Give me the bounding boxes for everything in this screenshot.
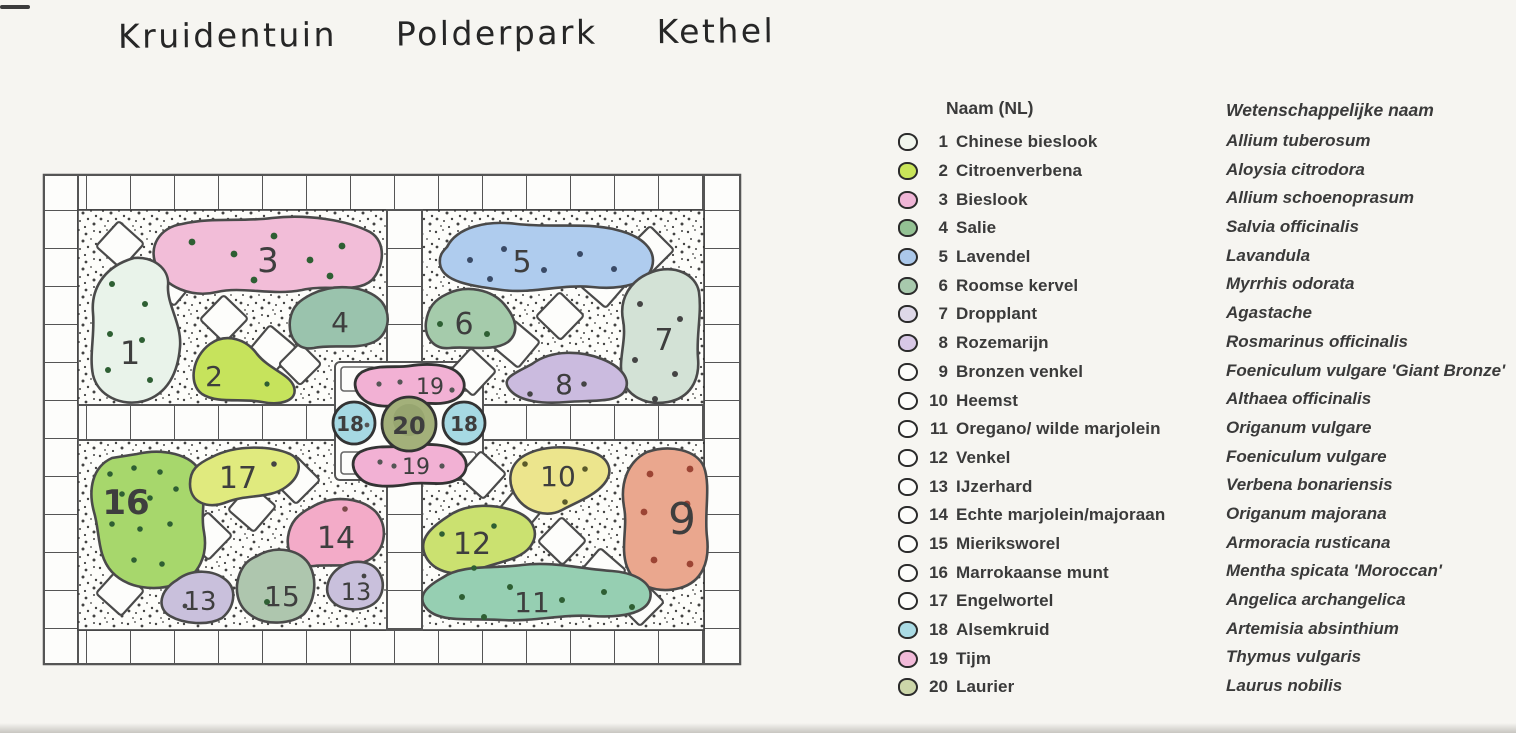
bed-label-19t: 19 — [416, 375, 444, 400]
legend-swatch — [898, 650, 918, 668]
legend-swatch — [898, 392, 918, 410]
legend-swatch — [898, 535, 918, 553]
legend-swatch — [898, 420, 918, 438]
bed-label-4: 4 — [331, 306, 349, 339]
bed-label-11: 11 — [514, 586, 550, 619]
legend-item-number: 19 — [924, 649, 948, 669]
legend-item-name-sci: Armoracia rusticana — [1226, 533, 1390, 553]
bed-label-6: 6 — [454, 307, 473, 342]
legend-item-name-sci: Allium schoenoprasum — [1226, 188, 1414, 208]
legend-swatch — [898, 564, 918, 582]
bed-label-19b: 19 — [402, 455, 430, 480]
legend-item-number: 14 — [924, 505, 948, 525]
legend-row: 15 Mieriksworel Armoracia rusticana — [888, 530, 1513, 559]
legend-row: 17 Engelwortel Angelica archangelica — [888, 587, 1513, 616]
legend-swatch — [898, 678, 918, 696]
bed-label-7: 7 — [654, 323, 673, 358]
bed-label-2: 2 — [205, 360, 223, 393]
legend-row: 18 Alsemkruid Artemisia absinthium — [888, 616, 1513, 645]
legend-swatch — [898, 191, 918, 209]
legend-row: 2 Citroenverbena Aloysia citrodora — [888, 157, 1513, 186]
legend-row: 3 Bieslook Allium schoenoprasum — [888, 185, 1513, 214]
bed-label-17: 17 — [219, 461, 257, 496]
scan-artifact — [0, 5, 30, 9]
legend-header-nl: Naam (NL) — [946, 98, 1034, 119]
legend-item-name-nl: Chinese bieslook — [956, 132, 1097, 152]
bed-label-20: 20 — [392, 412, 425, 440]
legend-swatch — [898, 162, 918, 180]
bed-label-1: 1 — [120, 334, 140, 372]
bed-label-18r: 18 — [450, 412, 478, 436]
legend-swatch — [898, 592, 918, 610]
bed-label-13a: 13 — [183, 587, 216, 617]
legend: Naam (NL) Wetenschappelijke naam 1 Chine… — [888, 98, 1513, 702]
legend-row: 14 Echte marjolein/majoraan Origanum maj… — [888, 501, 1513, 530]
scan-artifact-bottom — [0, 723, 1516, 733]
bed-label-3: 3 — [257, 241, 279, 281]
legend-item-name-nl: Tijm — [956, 649, 991, 669]
legend-row: 16 Marrokaanse munt Mentha spicata 'Moro… — [888, 558, 1513, 587]
legend-item-name-nl: Engelwortel — [956, 591, 1053, 611]
legend-item-number: 2 — [924, 161, 948, 181]
legend-item-number: 12 — [924, 448, 948, 468]
page-title: Kruidentuin Polderpark Kethel — [118, 11, 776, 56]
legend-item-name-sci: Origanum vulgare — [1226, 418, 1371, 438]
legend-item-number: 13 — [924, 477, 948, 497]
bed-label-10: 10 — [540, 460, 576, 493]
bed-label-18l: 18 — [336, 412, 364, 436]
legend-item-name-sci: Angelica archangelica — [1226, 590, 1406, 610]
legend-swatch — [898, 363, 918, 381]
legend-row: 7 Dropplant Agastache — [888, 300, 1513, 329]
legend-item-number: 18 — [924, 620, 948, 640]
legend-item-name-nl: Rozemarijn — [956, 333, 1049, 353]
legend-item-number: 11 — [924, 419, 948, 439]
legend-item-number: 3 — [924, 190, 948, 210]
legend-item-name-nl: Lavendel — [956, 247, 1031, 267]
bed-label-9: 9 — [668, 494, 696, 545]
bed-label-8: 8 — [555, 368, 573, 401]
legend-item-name-sci: Artemisia absinthium — [1226, 619, 1399, 639]
legend-item-name-sci: Lavandula — [1226, 246, 1310, 266]
legend-swatch — [898, 277, 918, 295]
legend-headers: Naam (NL) Wetenschappelijke naam — [888, 98, 1513, 128]
legend-item-name-sci: Myrrhis odorata — [1226, 274, 1354, 294]
legend-item-name-nl: Roomse kervel — [956, 276, 1078, 296]
legend-item-name-sci: Althaea officinalis — [1226, 389, 1371, 409]
legend-row: 13 IJzerhard Verbena bonariensis — [888, 472, 1513, 501]
legend-item-name-nl: Echte marjolein/majoraan — [956, 505, 1165, 525]
blob-5-lavendel — [440, 223, 653, 291]
legend-row: 8 Rozemarijn Rosmarinus officinalis — [888, 329, 1513, 358]
legend-swatch — [898, 478, 918, 496]
legend-item-name-nl: Bieslook — [956, 190, 1028, 210]
scanned-page: Kruidentuin Polderpark Kethel — [0, 0, 1516, 733]
legend-item-name-nl: Venkel — [956, 448, 1010, 468]
legend-item-name-sci: Salvia officinalis — [1226, 217, 1359, 237]
legend-item-name-nl: Mieriksworel — [956, 534, 1060, 554]
legend-item-number: 16 — [924, 563, 948, 583]
legend-item-name-sci: Agastache — [1226, 303, 1312, 323]
legend-row: 19 Tijm Thymus vulgaris — [888, 644, 1513, 673]
legend-item-number: 20 — [924, 677, 948, 697]
legend-row: 1 Chinese bieslook Allium tuberosum — [888, 128, 1513, 157]
blob-1-chinese-bieslook — [92, 258, 181, 403]
legend-swatch — [898, 305, 918, 323]
legend-item-name-nl: Heemst — [956, 391, 1018, 411]
legend-row: 6 Roomse kervel Myrrhis odorata — [888, 271, 1513, 300]
legend-item-name-sci: Laurus nobilis — [1226, 676, 1342, 696]
garden-plan-svg: 1 2 3 4 5 6 7 8 9 10 11 12 13 13 14 15 1… — [42, 172, 742, 667]
legend-item-name-sci: Verbena bonariensis — [1226, 475, 1393, 495]
legend-rows: 1 Chinese bieslook Allium tuberosum 2 Ci… — [888, 128, 1513, 702]
legend-row: 20 Laurier Laurus nobilis — [888, 673, 1513, 702]
bed-label-14: 14 — [317, 521, 355, 556]
legend-row: 10 Heemst Althaea officinalis — [888, 386, 1513, 415]
legend-swatch — [898, 133, 918, 151]
legend-header-sci: Wetenschappelijke naam — [1226, 100, 1434, 121]
legend-item-name-sci: Thymus vulgaris — [1226, 647, 1361, 667]
legend-item-number: 6 — [924, 276, 948, 296]
legend-item-number: 1 — [924, 132, 948, 152]
legend-swatch — [898, 449, 918, 467]
legend-item-name-sci: Aloysia citrodora — [1226, 160, 1365, 180]
legend-item-number: 10 — [924, 391, 948, 411]
legend-item-number: 17 — [924, 591, 948, 611]
legend-item-name-sci: Rosmarinus officinalis — [1226, 332, 1408, 352]
bed-label-16: 16 — [102, 483, 149, 523]
legend-item-name-sci: Foeniculum vulgare — [1226, 447, 1387, 467]
legend-item-name-nl: Bronzen venkel — [956, 362, 1083, 382]
legend-item-number: 7 — [924, 304, 948, 324]
legend-item-name-nl: Oregano/ wilde marjolein — [956, 419, 1161, 439]
legend-item-number: 4 — [924, 218, 948, 238]
legend-item-number: 9 — [924, 362, 948, 382]
legend-item-name-nl: Salie — [956, 218, 996, 238]
legend-swatch — [898, 621, 918, 639]
legend-item-name-nl: Citroenverbena — [956, 161, 1082, 181]
legend-item-name-nl: Alsemkruid — [956, 620, 1050, 640]
legend-item-name-sci: Mentha spicata 'Moroccan' — [1226, 561, 1442, 581]
bed-label-12: 12 — [453, 527, 491, 562]
bed-label-13b: 13 — [341, 578, 372, 606]
legend-row: 9 Bronzen venkel Foeniculum vulgare 'Gia… — [888, 358, 1513, 387]
legend-item-name-nl: Marrokaanse munt — [956, 563, 1109, 583]
legend-item-number: 15 — [924, 534, 948, 554]
legend-row: 12 Venkel Foeniculum vulgare — [888, 444, 1513, 473]
legend-item-name-sci: Allium tuberosum — [1226, 131, 1371, 151]
legend-item-number: 8 — [924, 333, 948, 353]
legend-item-name-sci: Origanum majorana — [1226, 504, 1387, 524]
garden-plan: 1 2 3 4 5 6 7 8 9 10 11 12 13 13 14 15 1… — [42, 172, 742, 667]
legend-item-name-nl: IJzerhard — [956, 477, 1033, 497]
legend-swatch — [898, 334, 918, 352]
legend-item-number: 5 — [924, 247, 948, 267]
legend-item-name-nl: Laurier — [956, 677, 1014, 697]
legend-row: 11 Oregano/ wilde marjolein Origanum vul… — [888, 415, 1513, 444]
legend-swatch — [898, 219, 918, 237]
bed-label-5: 5 — [512, 245, 531, 280]
legend-swatch — [898, 248, 918, 266]
legend-row: 5 Lavendel Lavandula — [888, 243, 1513, 272]
legend-row: 4 Salie Salvia officinalis — [888, 214, 1513, 243]
legend-swatch — [898, 506, 918, 524]
legend-item-name-sci: Foeniculum vulgare 'Giant Bronze' — [1226, 361, 1505, 381]
legend-item-name-nl: Dropplant — [956, 304, 1037, 324]
bed-label-15: 15 — [264, 580, 300, 613]
